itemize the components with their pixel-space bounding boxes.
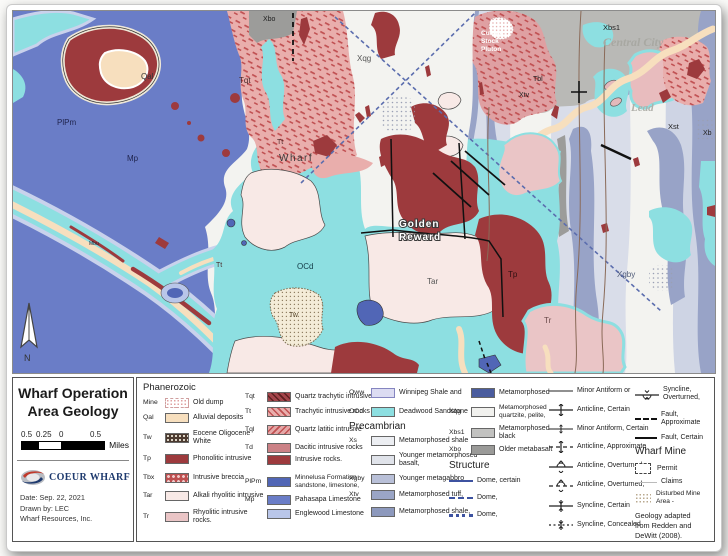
map-label-tp: Tp [508,270,518,279]
north-label: N [24,353,31,363]
scale-unit: Miles [109,440,129,450]
map-label-mbu: Mbu [89,241,99,247]
td-swatch [267,443,291,453]
legend-row-disturbed: Disturbed Mine Area - [635,490,713,505]
map-label-cutting1: Cutting [481,30,504,37]
legend-row-dome-concealed: Dome, [449,511,565,519]
minor-antiform-certain-symbol [549,423,573,435]
oww-swatch [371,388,395,398]
legend-row-dome-approx: Dome, [449,494,565,502]
mp-swatch [267,495,291,505]
tt-swatch [267,407,291,417]
map-label-xb: Xb [703,130,712,137]
legend-row-fault-certain: Fault, Certain [635,434,713,442]
company-text: Wharf Resources, Inc. [20,514,133,525]
legend-row-xbs1: Xbs1Metamorphosed black [449,425,565,441]
map-label-golden: Golden [399,219,439,230]
scale-tick: 0 [59,430,90,439]
map-label-tw: Tw [289,312,299,319]
coeur-logo-icon [20,469,46,486]
wharf-mine-header: Wharf Mine [635,446,713,457]
dome-certain-line [449,480,473,482]
englewood-swatch [267,509,291,519]
intrusive-swatch [267,455,291,465]
tp-swatch [165,454,189,464]
anticline-approximate-symbol [549,441,573,453]
tr-swatch [165,512,189,522]
legend-row-dome-certain: Dome, certain [449,477,565,485]
legend-row-claims: Claims [635,478,713,486]
meta-shale-swatch [371,507,395,517]
xs-swatch [371,436,395,446]
legend-row-permit: Permit [635,463,713,474]
dome-approximate-line [449,497,473,499]
map-label-xst: Xst [668,122,680,131]
fault-certain-line [635,437,657,439]
scale-tick: 0.5 [90,430,110,439]
tbx-swatch [165,473,189,483]
anticline-overturned-dashed-symbol [549,479,573,492]
syncline-overturned-symbol [635,388,659,401]
legend-row-fault-approx: Fault, Approximate [635,411,713,427]
map-label-tqt: Tqt [239,76,251,85]
map-label-xtv: Xtv [519,92,530,99]
qal-swatch [165,413,189,423]
structure-header: Structure [449,460,565,471]
map-label-ocd: OCd [297,262,313,271]
geologic-map-canvas: Qal PlPm Mp Mbu Tqt Xbo Xqg Tt Wharf Tt … [13,11,715,373]
claims-line [635,482,657,483]
plpm-swatch [267,477,291,487]
map-label-xgby: Xgby [617,270,635,279]
map-sheet: Qal PlPm Mp Mbu Tqt Xbo Xqg Tt Wharf Tt … [6,4,722,552]
map-label-tt2: Tt [216,262,222,269]
legend: Phanerozoic MineOld dump QalAlluvial dep… [136,377,715,542]
date-text: Date: Sep. 22, 2021 [20,493,133,504]
title-block: Wharf Operation Area Geology 0.5 0.25 0 … [12,377,134,542]
map-label-wharf: Wharf [279,153,313,164]
dome-concealed-line [449,514,473,517]
metamorphosed-swatch [471,388,495,398]
legend-row-xbo: XboOlder metabasalt [449,445,565,455]
fault-approximate-line [635,418,657,420]
map-label-tar: Tar [427,277,438,286]
map-label-tt1: Tt [277,139,283,146]
xqg-swatch [471,407,495,417]
map-label-cutting3: Pluton [481,46,501,53]
map-label-tbl: Tbl [533,76,543,83]
legend-row-metamorphosed: Metamorphosed [449,388,565,398]
xbs1-swatch [471,428,495,438]
disturbed-mine-area-symbol [635,493,651,503]
xtv-swatch [371,490,395,500]
minor-antiform-symbol [549,386,573,396]
syncline-concealed-symbol [549,519,573,531]
anticline-overturned-symbol [549,460,573,473]
anticline-certain-symbol [549,404,573,416]
map-label-reward: Reward [399,232,441,243]
divider [17,460,129,461]
map-label-central-city: Central City [603,35,664,49]
legend-row-xqg: XqgMetamorphosed quartzite, pelite, [449,404,565,419]
region-qal-core [100,50,148,88]
permit-symbol [635,463,651,474]
xbo-swatch [471,445,495,455]
map-label-tr: Tr [544,316,552,325]
younger-basalt-swatch [371,455,395,465]
tql-swatch [267,425,291,435]
scale-bar-graphic [21,441,105,450]
old-dump-swatch [165,398,189,408]
map-title-line2: Area Geology [13,403,133,421]
map-label-xqg: Xqg [357,54,371,63]
map-label-plpm: PlPm [57,118,76,127]
logo-text: COEUR WHARF [49,472,130,483]
map-label-xbo: Xbo [263,16,276,23]
map-title-line1: Wharf Operation [13,385,133,403]
tar-swatch [165,491,189,501]
scale-bar: 0.5 0.25 0 0.5 Miles [21,430,127,450]
coeur-wharf-logo: COEUR WHARF [20,469,133,486]
credit-text: Geology adapted from Redden and DeWitt (… [635,511,707,541]
ocd-swatch [371,407,395,417]
legend-row-syncline-overturned: Syncline, Overturned, [635,386,713,402]
map-label-cutting2: Stock [481,38,499,45]
tqt-swatch [267,392,291,402]
xgby-swatch [371,474,395,484]
map-label-xbs1: Xbs1 [603,23,620,32]
map-label-mp: Mp [127,154,139,163]
tw-swatch [165,433,189,443]
scale-tick: 0.5 [21,430,36,439]
syncline-certain-symbol [549,500,573,512]
map-label-lead: Lead [630,102,654,114]
map-label-qal: Qal [141,72,154,81]
geologic-map: Qal PlPm Mp Mbu Tqt Xbo Xqg Tt Wharf Tt … [12,10,716,374]
scale-tick: 0.25 [36,430,59,439]
drawn-by-text: Drawn by: LEC [20,504,133,515]
